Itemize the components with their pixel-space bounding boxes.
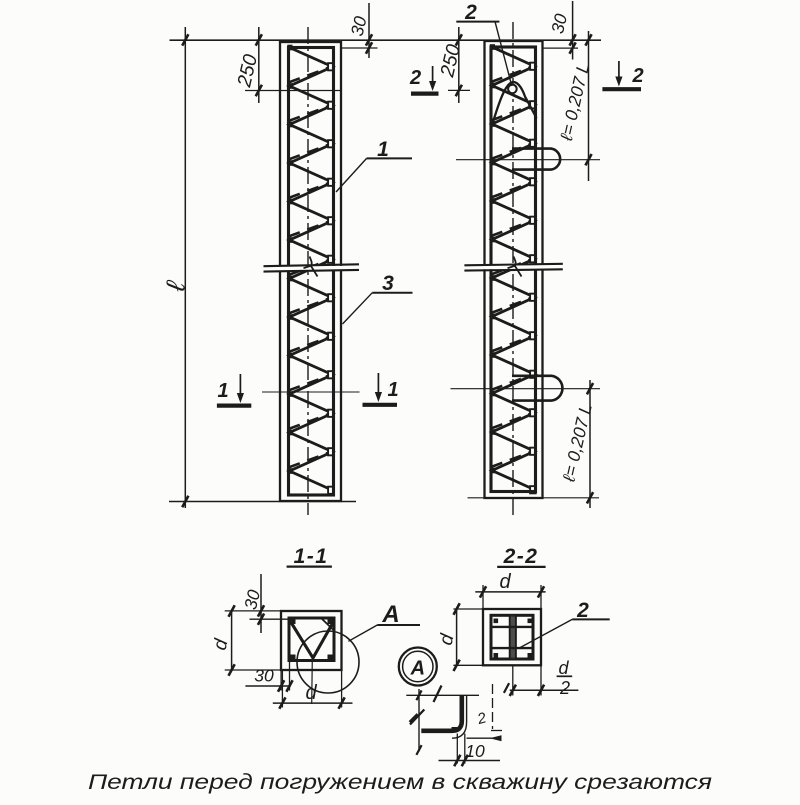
svg-text:2: 2 (559, 678, 570, 698)
svg-text:А: А (410, 658, 425, 680)
svg-text:d: d (558, 658, 569, 678)
svg-text:30: 30 (254, 666, 274, 686)
svg-text:10: 10 (465, 741, 485, 761)
svg-text:1: 1 (387, 379, 398, 401)
svg-text:d: d (305, 682, 317, 704)
svg-text:d: d (499, 571, 511, 593)
svg-text:3: 3 (382, 272, 394, 295)
svg-text:1: 1 (217, 380, 228, 402)
svg-text:Петли перед погружением в сква: Петли перед погружением в скважину среза… (88, 770, 713, 794)
svg-text:2: 2 (631, 65, 643, 87)
svg-text:А: А (381, 601, 399, 628)
svg-text:2: 2 (409, 67, 421, 89)
svg-text:2-2: 2-2 (503, 545, 539, 568)
svg-text:1-1: 1-1 (294, 545, 329, 568)
svg-text:2: 2 (464, 1, 477, 24)
